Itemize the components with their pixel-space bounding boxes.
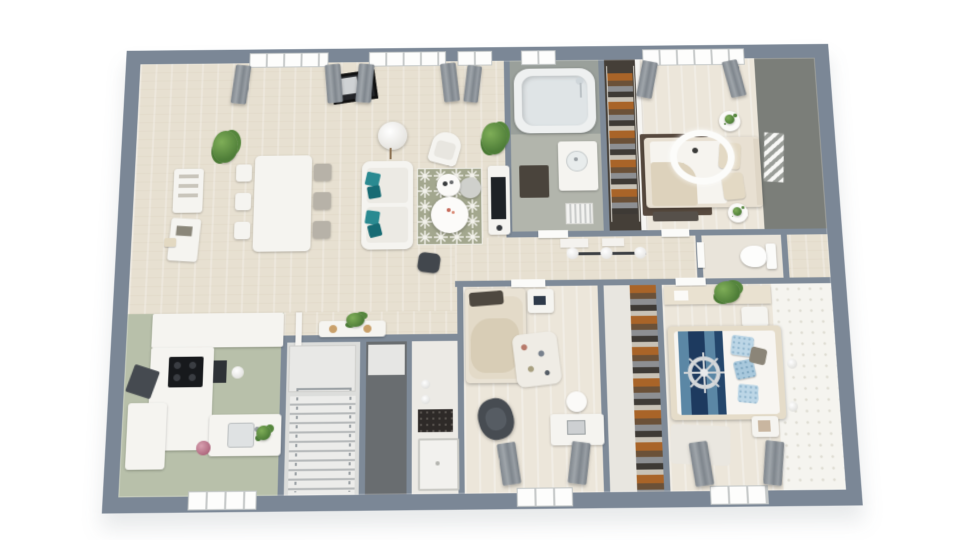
hall-floor-panel [602,238,624,246]
pendant-globe [634,247,646,259]
pouf [417,252,442,274]
flowers [452,211,455,214]
radiator [565,203,593,224]
bedroom3-door [675,277,705,285]
cooktop [168,357,204,388]
dark-pillow [469,290,504,307]
armchair-seat [483,405,509,432]
stair-landing [288,345,356,392]
bedroom2-window [517,487,574,507]
wall-shelf-upper [172,169,203,213]
kitchen-counter-top [151,313,284,348]
accent-wall-art [764,132,784,182]
floor-plan-render [102,44,863,514]
teal-pillow [367,185,382,199]
toilet-bowl [740,246,767,268]
stair-steps [288,396,356,496]
bedroom3-bed [668,325,787,420]
burner [188,374,195,381]
globe-wall-light [421,380,430,389]
shower-pipe [580,83,582,98]
plant [481,122,507,154]
decor-item [176,226,193,237]
shelf-slot [178,184,198,188]
laptop [567,420,586,435]
light-center [692,148,698,154]
tray-item [443,181,448,186]
page-background [0,0,960,540]
dining-chair [236,164,252,181]
bedside-table [527,289,554,313]
globe-wall-light [421,395,430,404]
dining-table [252,155,312,251]
living-window-1 [249,52,328,67]
shower-tray [418,438,460,491]
shelf-slot [179,174,199,178]
side-table-gray [459,177,481,198]
dining-chair [313,221,331,239]
sink [227,423,255,448]
dining-chair [234,222,250,240]
tray-table [437,174,461,197]
kitchen-sink-counter [208,414,281,456]
bedroom1-door [661,229,689,237]
tray-item [450,180,454,184]
plant-small [724,115,734,124]
toy [544,370,550,376]
console-decor [329,325,337,333]
toy [528,366,535,373]
curtain [763,440,784,486]
vanity-sink [566,151,588,172]
tv-console [488,166,511,235]
wall-lamp [787,401,798,411]
toy [538,350,545,357]
wall-light [164,238,176,247]
toilet-tank [765,243,777,269]
pendant-globe [600,247,612,259]
hall-floor-panel [560,239,588,248]
mosaic-panel [418,409,453,432]
drain [436,461,440,465]
blue-pillow [737,384,758,404]
kitchen-window [187,491,256,511]
shelf-slot [178,193,198,197]
flowers [447,208,451,212]
wall-lamp [787,358,798,368]
console-decor [496,225,502,231]
wall-corridor-shower [406,341,411,494]
tv [491,177,506,219]
clutter-rug [511,331,562,388]
toy [521,344,528,351]
oven [213,360,227,383]
lamp-leg [390,148,392,159]
corridor-door [368,344,405,375]
taupe-pillow [749,346,768,366]
dining-chair [235,193,251,210]
ship-wheel-decor [681,350,728,395]
nightstand [751,416,779,437]
armchair-seat [433,139,457,160]
living-window-2 [369,51,446,66]
bedroom2-door [511,279,545,287]
desk-chair [566,391,587,412]
curtain [325,64,343,104]
burner [173,374,180,381]
vanity [558,141,599,191]
bed-bench [653,211,699,221]
bathroom-door [538,230,568,238]
console-box [674,291,689,301]
plant-large [714,281,741,303]
art-print [758,420,771,432]
bathroom-window [521,50,556,65]
nightstand [741,307,768,327]
bedroom3-window [710,485,769,505]
living-window-3 [457,51,492,66]
pendant-globe [566,247,578,259]
bathtub [514,68,597,133]
burner [174,362,181,369]
dining-chair [313,192,331,209]
book [534,296,546,305]
sink-drain [574,157,578,161]
bath-mat [519,165,549,198]
dining-chair [314,164,332,181]
console-decor [363,325,371,333]
burner [189,362,196,369]
sofa [361,161,413,250]
wc-door [697,242,705,267]
plant-small [733,207,742,216]
fridge [125,403,167,470]
